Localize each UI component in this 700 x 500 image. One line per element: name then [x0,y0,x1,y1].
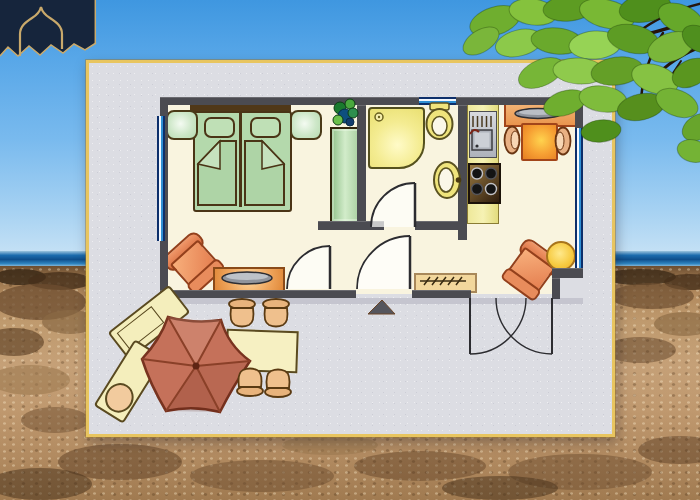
window-top [419,97,456,105]
wall-hall-a [318,221,384,230]
leaves [458,0,700,166]
wall-corner [552,278,560,299]
wall-hall-b [415,221,459,230]
wall-bottom-mid [412,290,471,298]
nightstand-right [290,110,322,140]
shower-tray [368,107,425,169]
screenshot-root [0,0,700,500]
round-side-table [546,241,576,271]
corner-notch [560,278,584,299]
wall-bedroom-bathroom [357,105,366,225]
brand-logo [0,0,100,62]
pillow-right [250,117,281,138]
tree-foliage [455,0,700,172]
bed-divider [239,112,242,207]
wall-corner-cap [552,268,583,278]
outdoor-table [225,329,298,373]
wall-bottom-left [160,290,356,298]
building-shadow [162,298,583,304]
window-left [157,116,165,241]
pillow-left [204,117,235,138]
nightstand-left [166,110,198,140]
